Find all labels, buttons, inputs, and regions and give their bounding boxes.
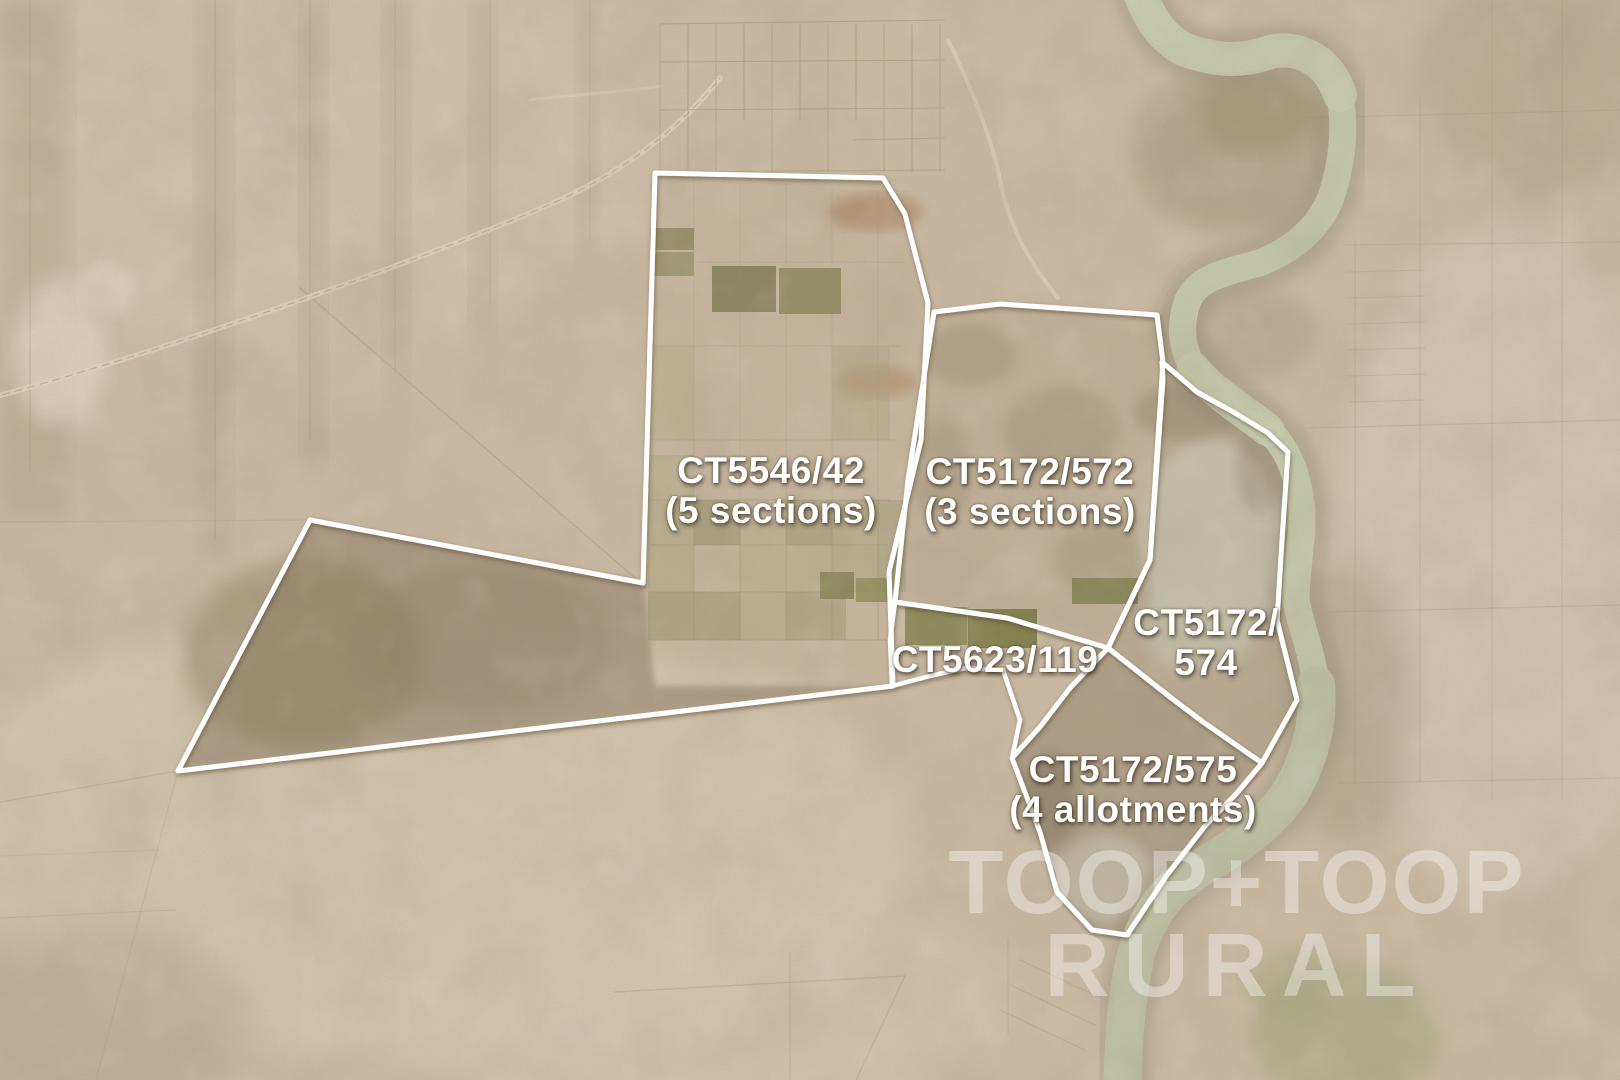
aerial-map: CT5546/42 (5 sections) CT5172/572 (3 sec… (0, 0, 1620, 1080)
watermark-brand: TOOP+TOOP (948, 838, 1525, 928)
watermark-division: RURAL (1045, 921, 1430, 1011)
